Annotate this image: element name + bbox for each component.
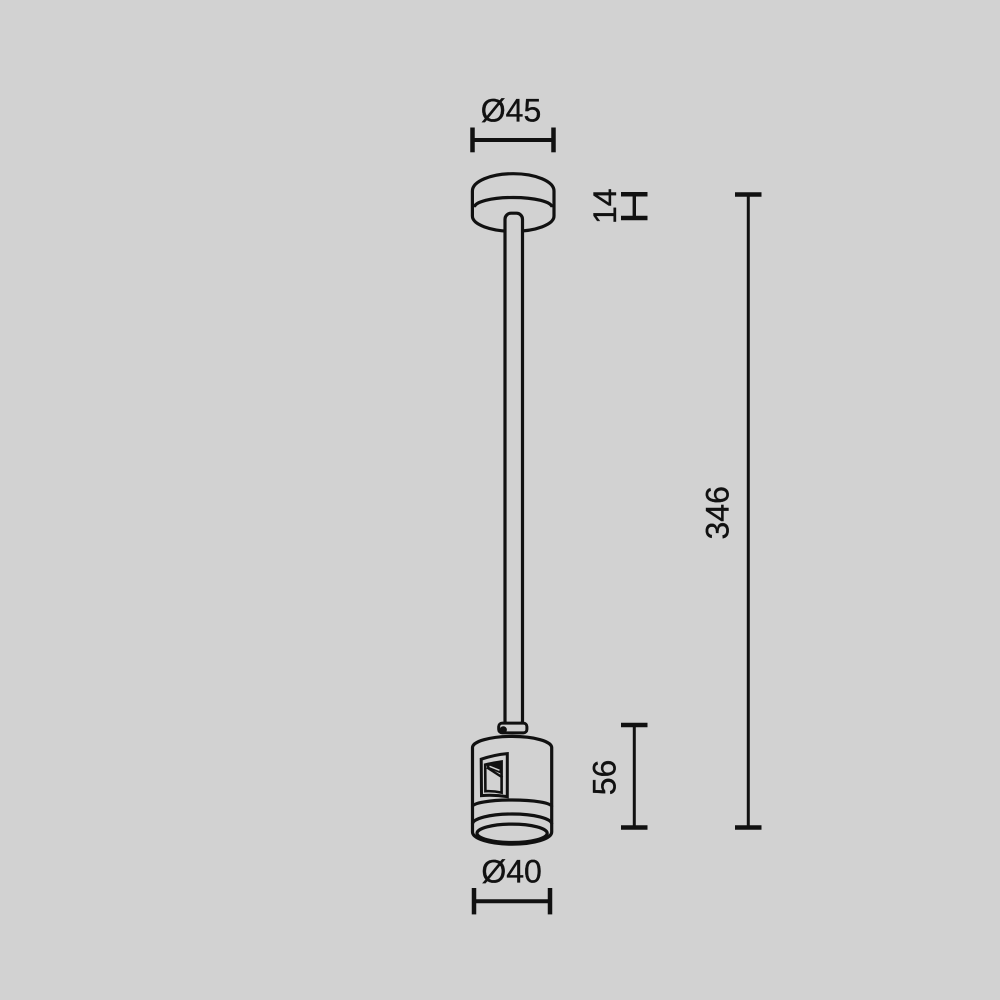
svg-text:Ø40: Ø40 xyxy=(481,853,541,889)
svg-text:Ø45: Ø45 xyxy=(481,93,541,129)
svg-text:56: 56 xyxy=(587,760,623,796)
svg-text:346: 346 xyxy=(700,486,736,539)
svg-text:14: 14 xyxy=(587,188,623,224)
